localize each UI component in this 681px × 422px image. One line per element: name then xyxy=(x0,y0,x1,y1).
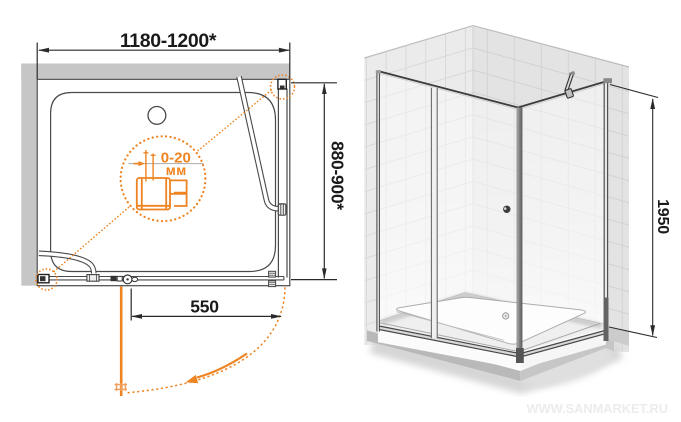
svg-text:1180-1200*: 1180-1200* xyxy=(120,30,217,52)
svg-text:1950: 1950 xyxy=(654,199,671,234)
svg-text:WWW.SANMARKET.RU: WWW.SANMARKET.RU xyxy=(527,401,668,416)
svg-text:880-900*: 880-900* xyxy=(327,141,347,210)
svg-text:550: 550 xyxy=(190,297,219,317)
svg-text:мм: мм xyxy=(166,163,187,178)
